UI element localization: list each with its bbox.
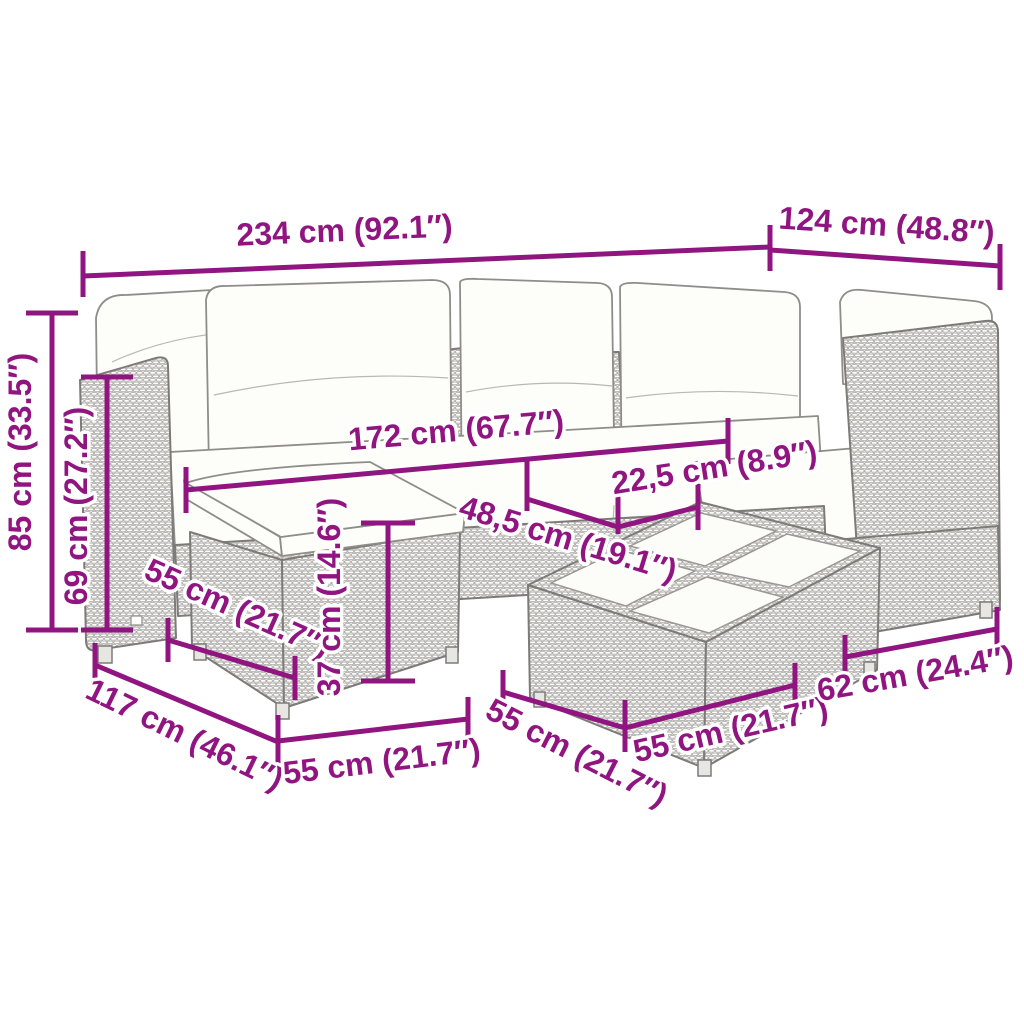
left-armrest: [80, 357, 176, 663]
dim-frame-height: 69 cm (27.2″): [58, 407, 94, 606]
diagram-canvas: 234 cm (92.1″) 124 cm (48.8″) 85 cm (33.…: [0, 0, 1024, 1024]
dim-total-height: 85 cm (33.5″): [2, 353, 38, 552]
product-dimension-diagram: 234 cm (92.1″) 124 cm (48.8″) 85 cm (33.…: [0, 0, 1024, 1024]
dim-corner-section-depth: 124 cm (48.8″): [778, 200, 996, 251]
dim-table-height: 37 cm (14.6″): [311, 498, 347, 697]
dim-footstool-width: 55 cm (21.7″): [281, 731, 482, 791]
dim-total-length: 234 cm (92.1″): [236, 207, 454, 252]
